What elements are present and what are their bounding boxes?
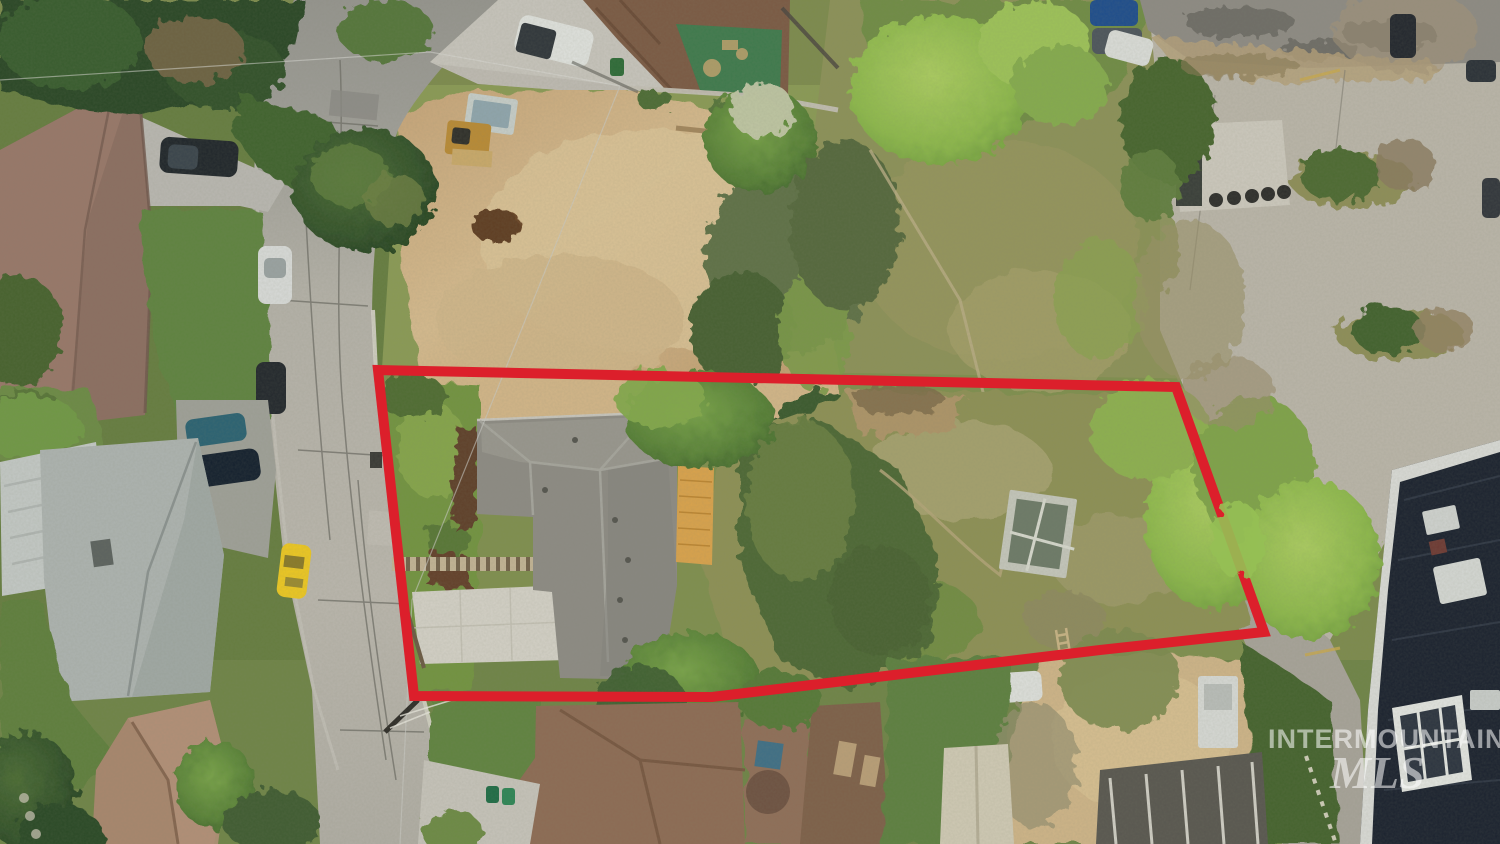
svg-text:MLS: MLS <box>1329 747 1425 798</box>
